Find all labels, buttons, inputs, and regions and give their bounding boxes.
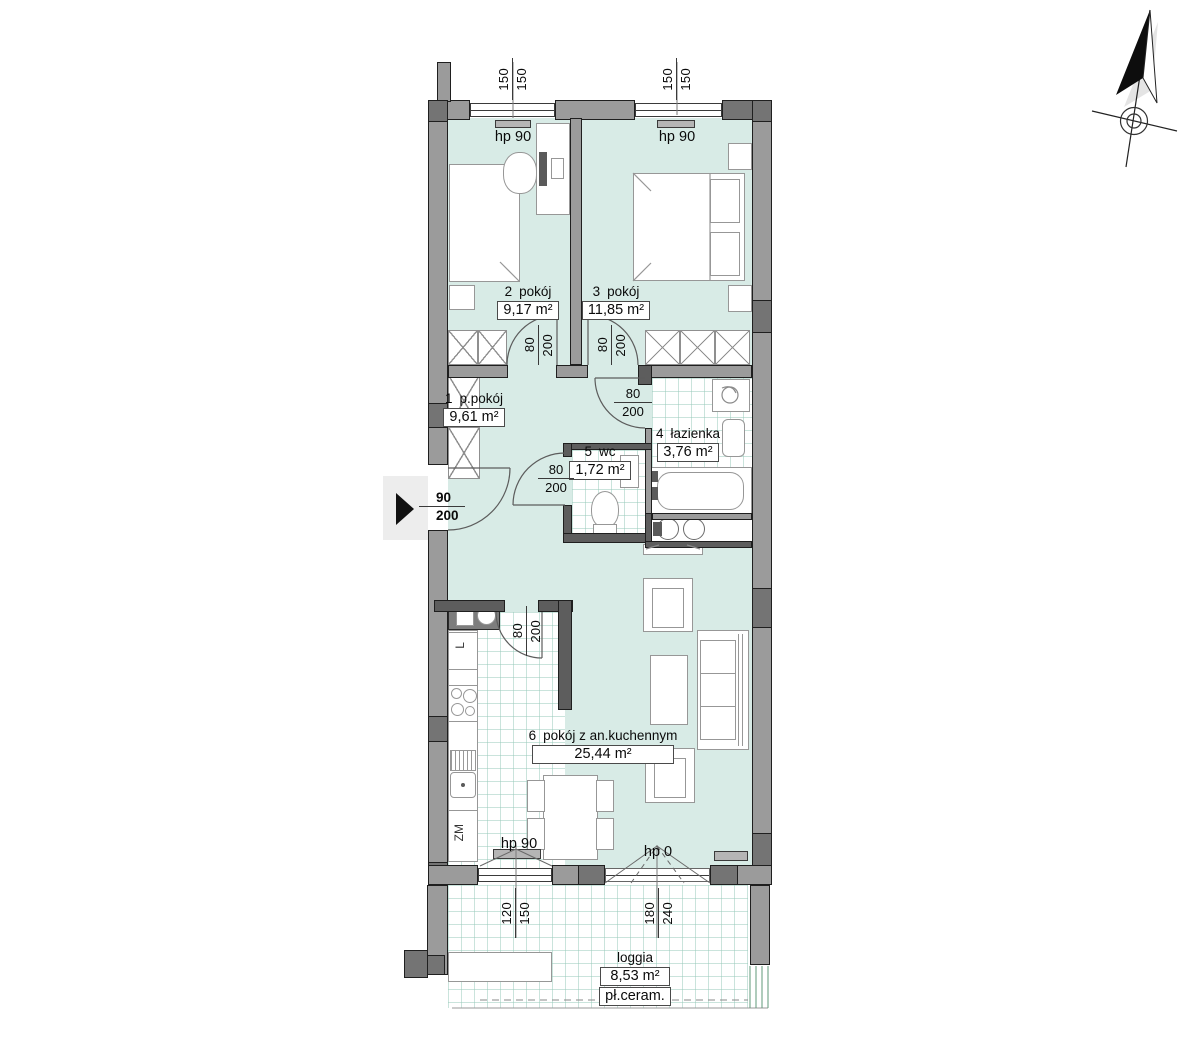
door-dim-kitchen: 80200	[508, 606, 544, 656]
room-1-label: 1p.pokój 9,61 m²	[424, 391, 524, 427]
radiator	[495, 120, 531, 128]
window-kitchen	[478, 868, 552, 882]
sofa-cushion-line	[700, 706, 736, 707]
washing-machine	[712, 379, 750, 412]
burner	[465, 706, 475, 716]
sofa-back	[742, 634, 743, 746]
wall	[425, 955, 445, 975]
room-1-area: 9,61 m²	[443, 408, 504, 427]
dining-chair	[596, 780, 614, 812]
window-dim-balcony: 180240	[632, 888, 684, 938]
fridge	[448, 632, 478, 670]
loggia-area: 8,53 m²	[600, 967, 670, 986]
wall	[558, 600, 572, 710]
wall	[752, 100, 772, 868]
balcony-door	[605, 868, 710, 882]
monitor	[539, 152, 547, 186]
nightstand	[728, 143, 752, 170]
wall	[428, 100, 448, 122]
door-dim-room2: 80200	[520, 325, 556, 365]
dining-chair	[596, 818, 614, 850]
door-dim-wc: 80200	[538, 462, 574, 495]
bed-footboard	[449, 285, 475, 310]
keyboard	[551, 158, 564, 179]
wall	[428, 530, 448, 885]
north-arrow-icon	[1092, 10, 1177, 167]
room-2-label: 2pokój 9,17 m²	[478, 284, 578, 320]
sill-label-balcony: hp 0	[633, 844, 683, 860]
wall	[563, 505, 572, 535]
sill-label-room2: hp 90	[484, 129, 542, 145]
window-room2	[470, 103, 555, 117]
dining-chair	[527, 780, 545, 812]
armchair-seat	[652, 588, 684, 628]
room-2-area: 9,17 m²	[497, 301, 558, 320]
dishwasher-label: ZM	[452, 824, 466, 841]
wardrobe	[645, 330, 750, 365]
room-3-area: 11,85 m²	[582, 301, 650, 320]
drain-dot	[461, 783, 465, 787]
dining-table	[543, 775, 598, 860]
wall	[570, 118, 582, 365]
wall	[404, 950, 428, 978]
wall	[428, 865, 478, 885]
burner	[451, 688, 462, 699]
wall	[578, 865, 605, 885]
window-dim-kitchen: 120150	[489, 888, 541, 938]
wall	[752, 833, 772, 868]
wall	[448, 365, 508, 378]
room-6-area: 25,44 m²	[532, 745, 674, 764]
room-3-label: 3pokój 11,85 m²	[566, 284, 666, 320]
sill-label-kitchen: hp 90	[490, 836, 548, 852]
wall	[752, 100, 772, 122]
wall	[555, 100, 635, 120]
duct-vent	[653, 522, 662, 536]
wall	[752, 588, 772, 628]
burner	[451, 703, 464, 716]
floor-plan: L ZM	[0, 0, 1200, 1060]
toilet	[591, 491, 619, 528]
wardrobe	[448, 330, 507, 365]
nightstand	[728, 285, 752, 312]
door-dim-bathroom: 80200	[614, 386, 652, 419]
window-dim-room2: 150150	[486, 58, 538, 100]
room-6-label: 6pokój z an.kuchennym 25,44 m²	[523, 728, 683, 764]
door-dim-room3: 80200	[593, 325, 629, 365]
sill-label-room3: hp 90	[648, 129, 706, 145]
wall	[638, 365, 752, 378]
pillow	[710, 179, 740, 223]
door-dim-entrance: 90200	[419, 490, 465, 523]
wall	[563, 533, 652, 543]
wall	[645, 541, 752, 548]
sofa-cushion-line	[700, 673, 736, 674]
bathtub-inner	[657, 472, 744, 510]
burner	[463, 689, 477, 703]
radiator	[657, 120, 695, 128]
wall-stub	[437, 62, 451, 102]
pillow	[710, 232, 740, 276]
room-5-area: 1,72 m²	[569, 461, 630, 480]
coffee-table	[650, 655, 688, 725]
room-4-label: 4łazienka 3,76 m²	[638, 426, 738, 462]
wall	[556, 365, 588, 378]
wall	[652, 513, 752, 520]
wall	[638, 365, 652, 385]
sofa-cushions	[700, 640, 736, 740]
wall	[428, 716, 448, 742]
sink-drainer	[450, 750, 476, 771]
loggia-floor-type: pł.ceram.	[599, 987, 671, 1006]
sofa-back	[738, 634, 739, 746]
wall	[750, 885, 770, 965]
loggia-label: loggia 8,53 m² pł.ceram.	[585, 950, 685, 1006]
window-room3	[635, 103, 722, 117]
office-chair	[503, 152, 537, 194]
radiator	[714, 851, 748, 861]
wall	[710, 865, 738, 885]
duct-pipe	[683, 518, 705, 540]
fridge-label: L	[453, 642, 467, 649]
wall	[434, 600, 505, 612]
loggia-bench	[448, 952, 552, 982]
room-4-area: 3,76 m²	[657, 443, 718, 462]
window-dim-room3: 150150	[650, 58, 702, 100]
armchair-seat	[654, 758, 686, 798]
wall	[752, 300, 772, 333]
